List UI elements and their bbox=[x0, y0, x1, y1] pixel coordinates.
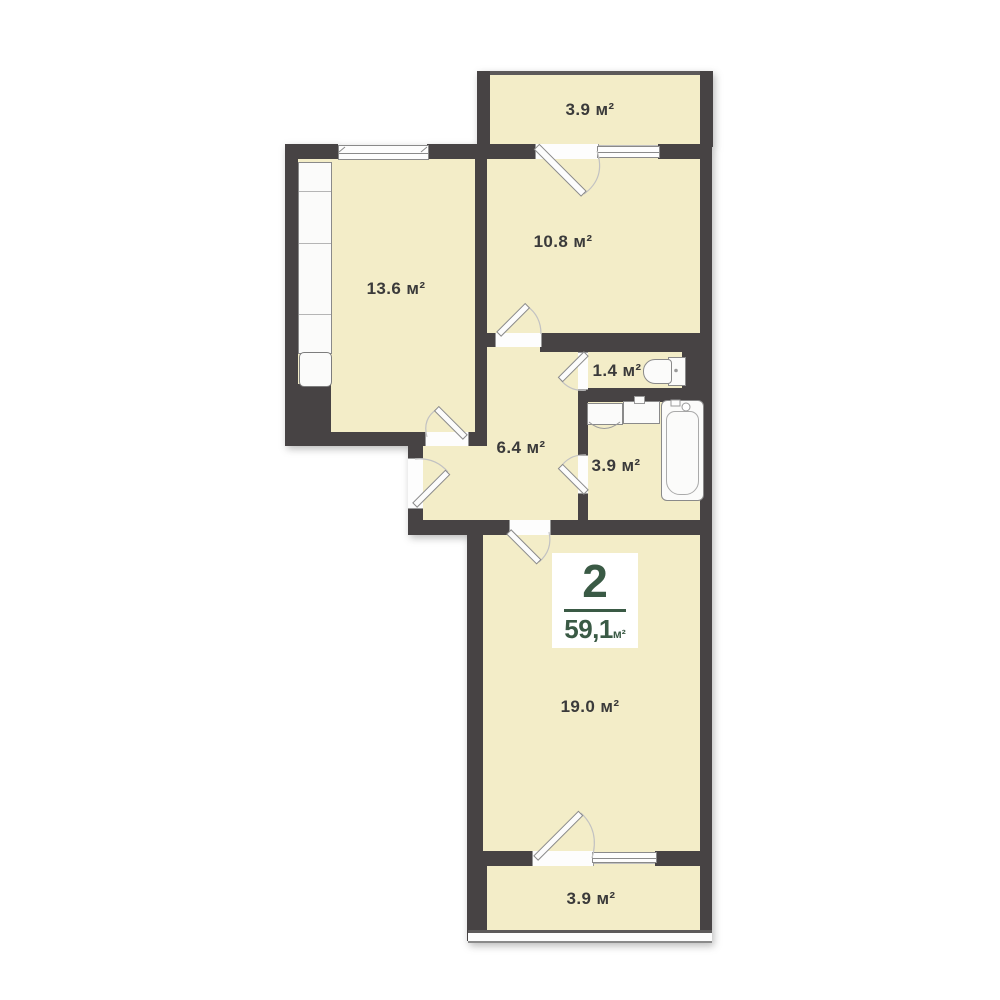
toilet-flush-icon bbox=[674, 369, 678, 373]
area-label-kitchen: 13.6 м² bbox=[367, 279, 426, 299]
living-balcony-door bbox=[534, 811, 594, 860]
unit-info-badge: 2 59,1м² bbox=[552, 553, 638, 648]
total-area-unit: м² bbox=[613, 627, 626, 641]
kitchen-door bbox=[426, 407, 467, 440]
area-label-balcony-top: 3.9 м² bbox=[566, 100, 615, 120]
area-label-bathroom: 3.9 м² bbox=[592, 456, 641, 476]
bathroom-door bbox=[558, 455, 588, 494]
window-dim-ticks bbox=[339, 147, 427, 152]
unit-total-area: 59,1м² bbox=[564, 616, 625, 642]
tub-handle-icon bbox=[671, 400, 680, 406]
unit-rooms-count: 2 bbox=[582, 558, 608, 604]
tub-faucet-icon bbox=[682, 403, 690, 411]
floor-plan: 3.9 м² 13.6 м² 10.8 м² 1.4 м² 6.4 м² 3.9… bbox=[0, 0, 1000, 1000]
floor-plan-page: 3.9 м² 13.6 м² 10.8 м² 1.4 м² 6.4 м² 3.9… bbox=[0, 0, 1000, 1000]
area-label-bedroom: 10.8 м² bbox=[534, 232, 593, 252]
living-room-door bbox=[507, 530, 550, 564]
area-label-living: 19.0 м² bbox=[561, 697, 620, 717]
area-label-balcony-bottom: 3.9 м² bbox=[567, 889, 616, 909]
entrance-door bbox=[413, 459, 450, 507]
bedroom-door bbox=[497, 304, 541, 337]
badge-divider bbox=[564, 609, 626, 612]
area-label-hallway: 6.4 м² bbox=[497, 438, 546, 458]
area-label-wc: 1.4 м² bbox=[593, 361, 642, 381]
bedroom-balcony-door bbox=[534, 144, 599, 196]
wc-door bbox=[558, 352, 588, 390]
total-area-value: 59,1 bbox=[564, 614, 613, 644]
washer-front-icon bbox=[589, 422, 620, 429]
doors-overlay bbox=[0, 0, 1000, 1000]
